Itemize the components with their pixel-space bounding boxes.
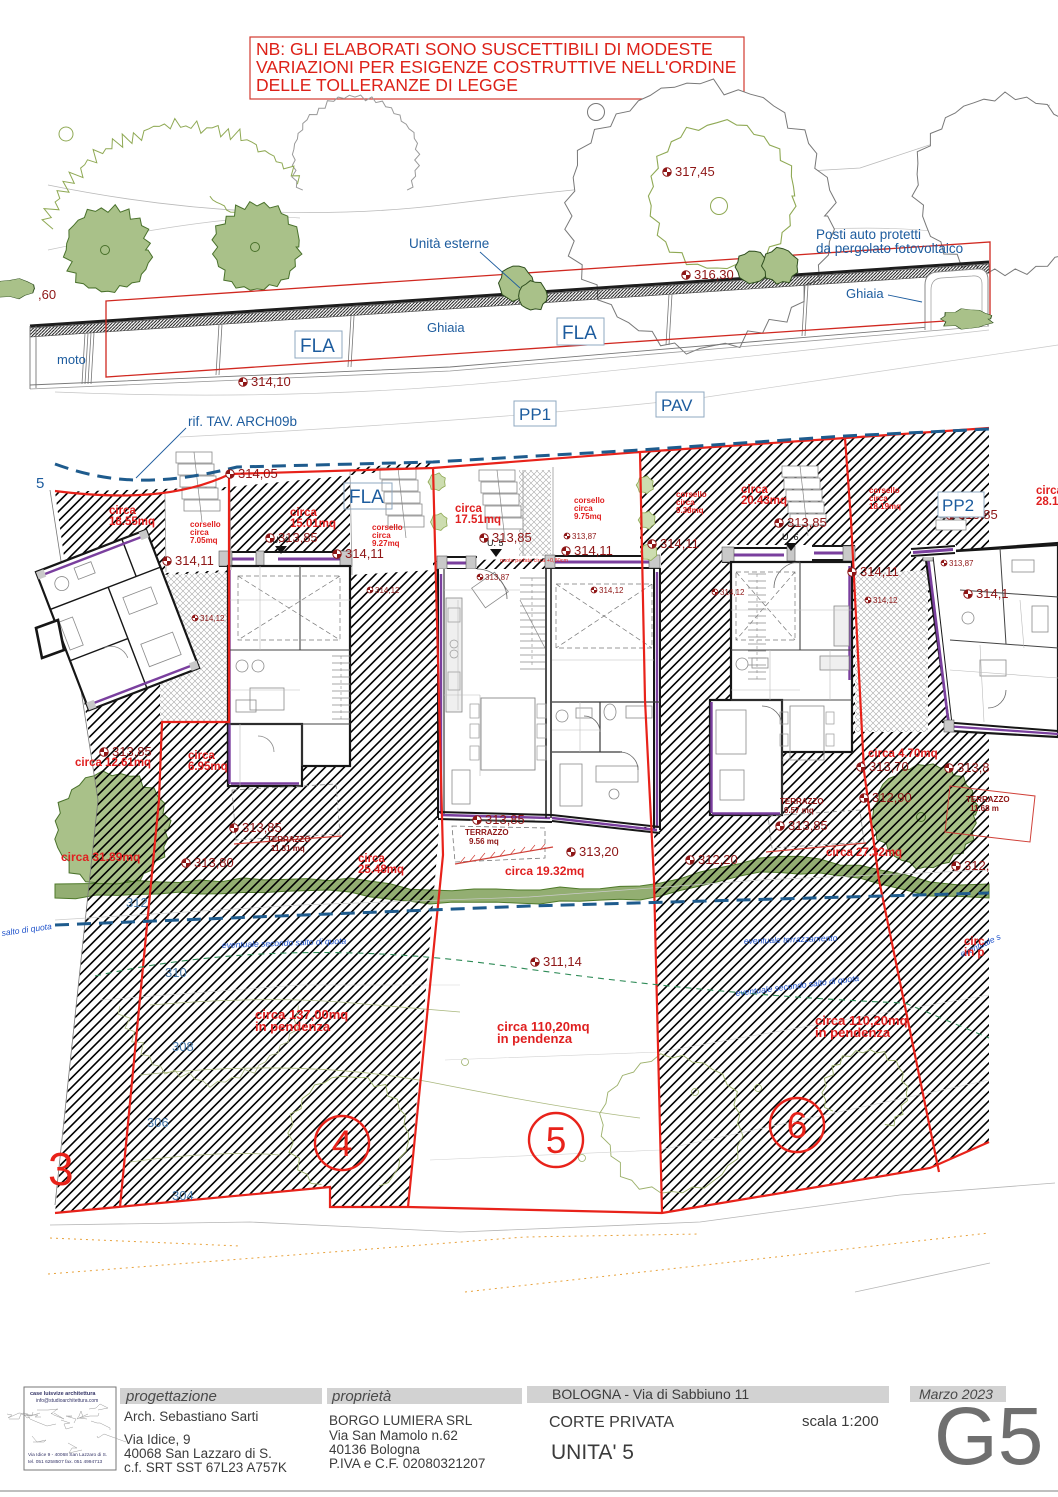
svg-text:314,1: 314,1 <box>976 586 1009 601</box>
svg-text:313,80: 313,80 <box>194 855 234 870</box>
svg-text:in pendenza: in pendenza <box>497 1031 573 1046</box>
svg-text:tel. 051 6258507 fax. 051 4994: tel. 051 6258507 fax. 051 4994713 <box>28 1459 102 1465</box>
svg-text:314,11: 314,11 <box>574 543 613 558</box>
svg-text:313,85: 313,85 <box>788 818 828 833</box>
svg-text:quota pedata circa +0,80cm: quota pedata circa +0,80cm <box>500 558 568 564</box>
svg-text:314,10: 314,10 <box>251 374 291 389</box>
svg-text:314,11: 314,11 <box>860 564 899 579</box>
svg-text:VARIAZIONI PER ESIGENZE COSTRU: VARIAZIONI PER ESIGENZE COSTRUTTIVE NELL… <box>256 57 736 77</box>
svg-text:314,11: 314,11 <box>660 536 699 551</box>
svg-text:PP2: PP2 <box>942 496 974 515</box>
svg-text:18.19mq: 18.19mq <box>869 502 901 511</box>
svg-text:40136 Bologna: 40136 Bologna <box>329 1442 420 1457</box>
svg-text:PAV: PAV <box>661 396 693 415</box>
svg-text:313,85: 313,85 <box>492 530 532 545</box>
svg-text:circa 19.32mq: circa 19.32mq <box>505 864 584 878</box>
svg-text:FLA: FLA <box>349 487 384 508</box>
svg-text:316,30: 316,30 <box>694 267 734 282</box>
svg-text:in p: in p <box>964 947 984 959</box>
svg-text:BOLOGNA - Via di Sabbiuno 11: BOLOGNA - Via di Sabbiuno 11 <box>552 1386 749 1402</box>
svg-text:UNITA' 5: UNITA' 5 <box>551 1441 634 1464</box>
svg-text:DELLE TOLLERANZE DI LEGGE: DELLE TOLLERANZE DI LEGGE <box>256 75 518 95</box>
svg-text:314,12: 314,12 <box>375 586 400 595</box>
svg-text:7.05mq: 7.05mq <box>190 536 218 545</box>
svg-text:5: 5 <box>36 475 44 492</box>
svg-text:TERRAZZO: TERRAZZO <box>267 835 311 844</box>
svg-text:proprietà: proprietà <box>331 1388 391 1405</box>
svg-text:313,85: 313,85 <box>278 530 318 545</box>
svg-text:313,8: 313,8 <box>957 760 990 775</box>
svg-text:313,87: 313,87 <box>572 532 597 541</box>
svg-text:314,12: 314,12 <box>873 596 898 605</box>
svg-text:25.48mq: 25.48mq <box>358 864 404 876</box>
svg-text:311,14: 311,14 <box>543 954 582 969</box>
svg-text:313,85: 313,85 <box>112 744 152 759</box>
svg-text:rif. TAV. ARCH09b: rif. TAV. ARCH09b <box>188 414 297 429</box>
svg-text:info@studioarchitettura.com: info@studioarchitettura.com <box>36 1398 98 1404</box>
svg-text:moto: moto <box>57 352 86 367</box>
svg-text:salto di quota: salto di quota <box>1 921 53 938</box>
svg-text:313,20: 313,20 <box>579 844 619 859</box>
svg-text:BORGO LUMIERA SRL: BORGO LUMIERA SRL <box>329 1413 473 1428</box>
svg-text:9.38mq: 9.38mq <box>676 506 704 515</box>
svg-text:313,85: 313,85 <box>787 515 827 530</box>
svg-text:6.95mq: 6.95mq <box>188 761 228 773</box>
svg-text:G5: G5 <box>934 1391 1043 1482</box>
svg-text:3: 3 <box>48 1143 74 1195</box>
svg-text:NB: GLI ELABORATI SONO SUSCETT: NB: GLI ELABORATI SONO SUSCETTIBILI DI M… <box>256 39 713 59</box>
svg-text:4: 4 <box>332 1123 353 1164</box>
svg-text:11.31 mq: 11.31 mq <box>271 844 305 853</box>
svg-text:Arch. Sebastiano Sarti: Arch. Sebastiano Sarti <box>124 1409 258 1424</box>
svg-text:CORTE PRIVATA: CORTE PRIVATA <box>549 1414 674 1431</box>
svg-text:313,85: 313,85 <box>485 812 525 827</box>
svg-text:case luisvize architettura: case luisvize architettura <box>30 1391 96 1397</box>
svg-text:314,11: 314,11 <box>175 553 214 568</box>
svg-text:314,12: 314,12 <box>200 614 225 623</box>
svg-text:15.01mq: 15.01mq <box>290 518 336 530</box>
svg-text:313,85: 313,85 <box>242 820 282 835</box>
svg-text:progettazione: progettazione <box>125 1388 217 1405</box>
svg-text:314,12: 314,12 <box>599 586 624 595</box>
svg-text:9.56 mq: 9.56 mq <box>469 837 499 846</box>
svg-text:U. 6: U. 6 <box>782 532 799 542</box>
svg-text:40068 San Lazzaro di S.: 40068 San Lazzaro di S. <box>124 1446 272 1461</box>
svg-text:FLA: FLA <box>562 323 597 344</box>
svg-text:in pendenza: in pendenza <box>815 1025 891 1040</box>
svg-text:11.68 m: 11.68 m <box>970 804 999 813</box>
svg-text:5: 5 <box>546 1120 567 1161</box>
svg-text:TERRAZZO: TERRAZZO <box>465 828 509 837</box>
svg-text:312,: 312, <box>964 858 989 873</box>
svg-text:Unità esterne: Unità esterne <box>409 236 489 251</box>
svg-text:313,87: 313,87 <box>485 573 510 582</box>
svg-text:17.51mq: 17.51mq <box>455 514 501 526</box>
svg-text:Posti auto protetti: Posti auto protetti <box>816 227 921 242</box>
svg-text:6: 6 <box>787 1105 808 1146</box>
svg-text:306: 306 <box>147 1115 169 1130</box>
svg-text:Via Idice, 9: Via Idice, 9 <box>124 1432 191 1447</box>
svg-text:9.57 mq: 9.57 mq <box>784 806 814 815</box>
svg-text:circa 31.89mq: circa 31.89mq <box>61 850 140 864</box>
svg-text:317,45: 317,45 <box>675 164 715 179</box>
svg-text:314,11: 314,11 <box>345 546 384 561</box>
svg-text:312: 312 <box>126 895 148 910</box>
svg-text:312,90: 312,90 <box>872 790 912 805</box>
svg-text:Ghiaia: Ghiaia <box>846 286 884 301</box>
svg-text:Via San Mamolo n.62: Via San Mamolo n.62 <box>329 1428 458 1443</box>
svg-text:scala 1:200: scala 1:200 <box>802 1413 879 1430</box>
svg-text:308: 308 <box>172 1039 194 1054</box>
svg-text:circa 27.32mq: circa 27.32mq <box>826 847 902 859</box>
svg-text:314,12: 314,12 <box>720 588 745 597</box>
svg-text:18.55mq: 18.55mq <box>109 516 155 528</box>
svg-text:in pendenza: in pendenza <box>255 1019 331 1034</box>
svg-text:9.75mq: 9.75mq <box>574 512 602 521</box>
svg-text:Via Idice 9 - 40068 San Lazzar: Via Idice 9 - 40068 San Lazzaro di S. <box>28 1452 107 1458</box>
svg-text:314,05: 314,05 <box>238 466 278 481</box>
svg-text:310: 310 <box>165 965 187 980</box>
svg-text:P.IVA e C.F. 02080321207: P.IVA e C.F. 02080321207 <box>329 1456 485 1471</box>
svg-text:PP1: PP1 <box>519 405 551 424</box>
svg-text:313,70: 313,70 <box>869 759 909 774</box>
svg-text:313,87: 313,87 <box>949 559 974 568</box>
svg-text:304: 304 <box>172 1188 194 1203</box>
svg-text:28.1: 28.1 <box>1036 496 1058 508</box>
svg-text:TERRAZZO: TERRAZZO <box>966 795 1010 804</box>
svg-text:20.43mq: 20.43mq <box>741 495 787 507</box>
svg-text:Ghiaia: Ghiaia <box>427 320 465 335</box>
svg-text:,60: ,60 <box>38 287 56 302</box>
svg-text:da pergolato fotovoltaico: da pergolato fotovoltaico <box>816 241 963 256</box>
svg-text:312,20: 312,20 <box>698 852 738 867</box>
svg-text:TERRAZZO: TERRAZZO <box>780 797 824 806</box>
svg-text:FLA: FLA <box>300 336 335 357</box>
svg-text:c.f. SRT SST 67L23 A757K: c.f. SRT SST 67L23 A757K <box>124 1460 287 1475</box>
